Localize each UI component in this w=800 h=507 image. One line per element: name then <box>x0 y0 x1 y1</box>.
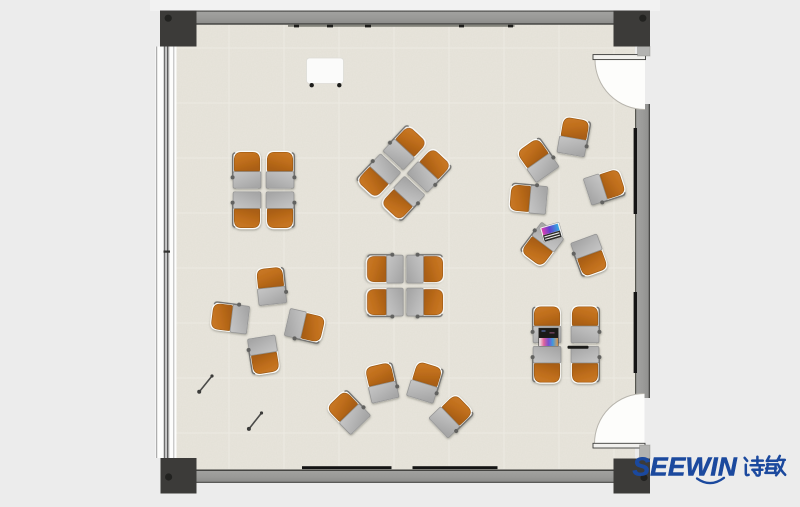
svg-text:SEEWIN: SEEWIN <box>633 452 738 482</box>
